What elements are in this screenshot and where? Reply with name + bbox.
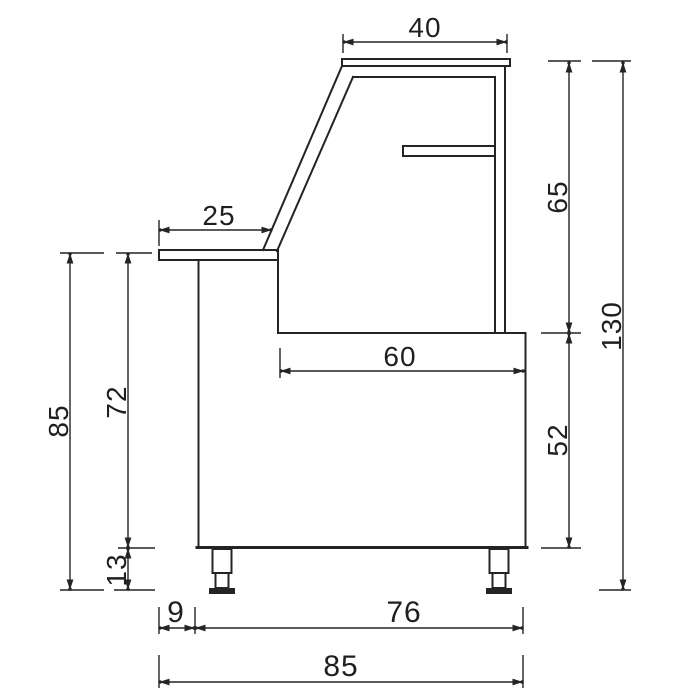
dim-worktop-width: 60 bbox=[280, 341, 524, 378]
left-leg-lower bbox=[216, 573, 229, 588]
right-leg-foot bbox=[486, 588, 512, 594]
dim-counter-depth: 25 bbox=[159, 200, 272, 246]
dim-leg-height: 13 bbox=[101, 548, 132, 590]
dim-top-width: 40 bbox=[343, 12, 507, 53]
dimension-label: 9 bbox=[167, 596, 185, 629]
counter-shelf bbox=[159, 250, 278, 260]
dimension-label: 72 bbox=[101, 385, 132, 418]
glass-display-case bbox=[263, 59, 510, 333]
right-leg bbox=[486, 549, 512, 594]
right-leg-upper bbox=[490, 549, 509, 573]
technical-drawing-page: 40 25 60 65 52 130 bbox=[0, 0, 700, 700]
dim-cabinet-depth: 76 bbox=[195, 596, 523, 634]
dimension-label: 65 bbox=[542, 180, 573, 213]
dimension-label: 40 bbox=[408, 12, 441, 43]
side-elevation-drawing: 40 25 60 65 52 130 bbox=[0, 0, 700, 700]
dim-counter-overhang: 9 bbox=[159, 596, 195, 634]
dimension-label: 13 bbox=[101, 553, 132, 586]
dimension-label: 85 bbox=[43, 404, 74, 437]
dim-counter-height: 72 bbox=[101, 253, 155, 548]
dimension-label: 76 bbox=[386, 596, 421, 629]
dim-overall-height: 130 bbox=[592, 61, 631, 590]
dim-left-overall-height: 85 bbox=[43, 253, 155, 590]
dimension-label: 85 bbox=[323, 650, 358, 683]
glass-top-panel bbox=[342, 59, 510, 66]
dimension-label: 52 bbox=[542, 423, 573, 456]
display-shelf bbox=[403, 146, 495, 156]
front-glass-inner bbox=[277, 77, 353, 251]
cabinet-body bbox=[197, 260, 527, 548]
left-leg-upper bbox=[213, 549, 232, 573]
left-leg bbox=[209, 549, 235, 594]
extension-lines bbox=[60, 253, 155, 590]
dimension-label: 25 bbox=[202, 200, 235, 231]
cabinet-walls bbox=[199, 260, 526, 547]
left-leg-foot bbox=[209, 588, 235, 594]
front-glass-outer bbox=[263, 66, 342, 250]
right-leg-lower bbox=[493, 573, 506, 588]
dimension-label: 60 bbox=[383, 341, 416, 372]
dim-overall-depth: 85 bbox=[159, 650, 523, 688]
dim-display-height: 65 bbox=[541, 61, 581, 333]
counter-worktop bbox=[159, 250, 278, 260]
dimension-label: 130 bbox=[596, 301, 627, 351]
dim-base-height: 52 bbox=[541, 333, 581, 548]
